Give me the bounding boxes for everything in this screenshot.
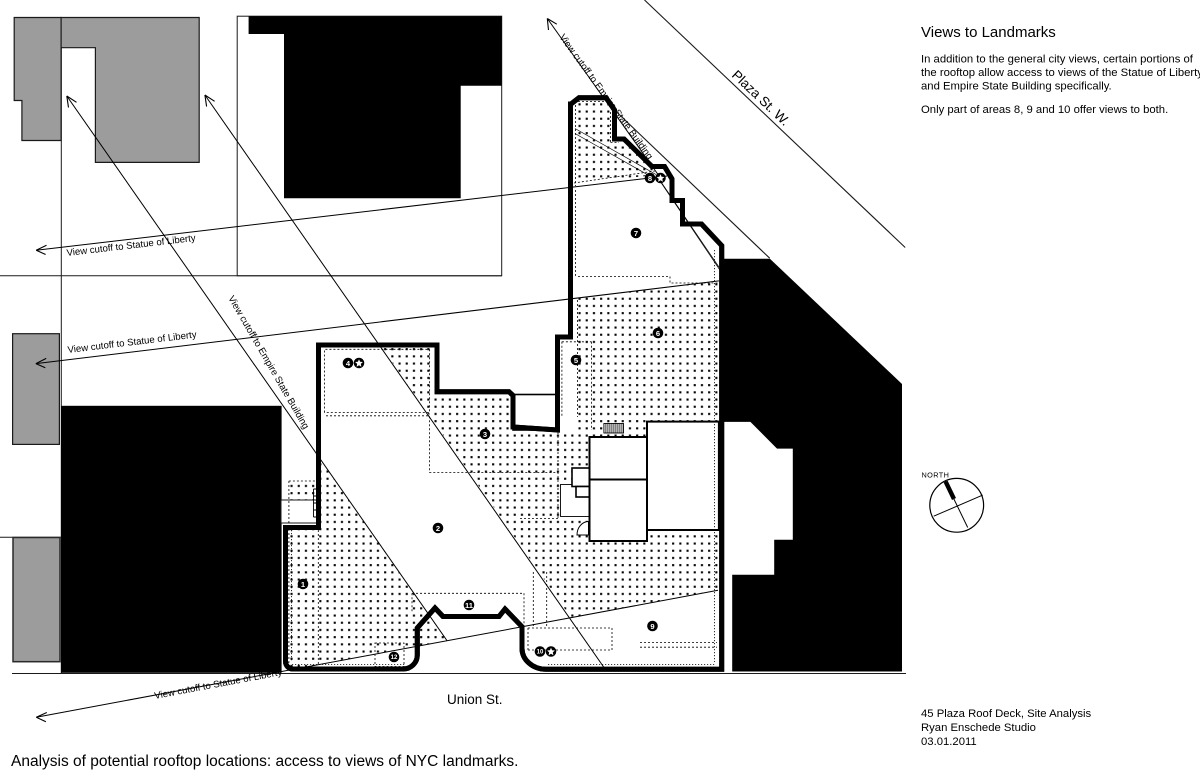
svg-text:Only part of areas 8, 9 and 10: Only part of areas 8, 9 and 10 offer vie…	[921, 104, 1168, 116]
svg-text:45 Plaza Roof Deck, Site Analy: 45 Plaza Roof Deck, Site Analysis	[921, 708, 1092, 720]
svg-text:Union St.: Union St.	[447, 692, 503, 707]
svg-text:NORTH: NORTH	[922, 471, 950, 480]
svg-text:6: 6	[656, 329, 660, 338]
svg-text:12: 12	[391, 655, 398, 661]
svg-text:and Empire State Building spec: and Empire State Building specifically.	[921, 81, 1112, 93]
svg-text:Ryan Enschede Studio: Ryan Enschede Studio	[921, 722, 1036, 734]
svg-text:10: 10	[537, 650, 544, 656]
svg-text:11: 11	[465, 601, 474, 610]
svg-text:03.01.2011: 03.01.2011	[921, 736, 977, 748]
svg-text:9: 9	[650, 622, 654, 631]
svg-text:7: 7	[634, 229, 638, 238]
svg-text:Analysis of potential rooftop: Analysis of potential rooftop locations:…	[11, 753, 518, 770]
svg-text:the rooftop allow access to vi: the rooftop allow access to views of the…	[921, 67, 1200, 79]
svg-text:3: 3	[483, 430, 487, 439]
svg-text:Views to Landmarks: Views to Landmarks	[921, 24, 1056, 41]
svg-text:8: 8	[648, 174, 652, 183]
svg-text:2: 2	[436, 524, 440, 533]
svg-text:In addition to the general cit: In addition to the general city views, c…	[921, 53, 1194, 65]
